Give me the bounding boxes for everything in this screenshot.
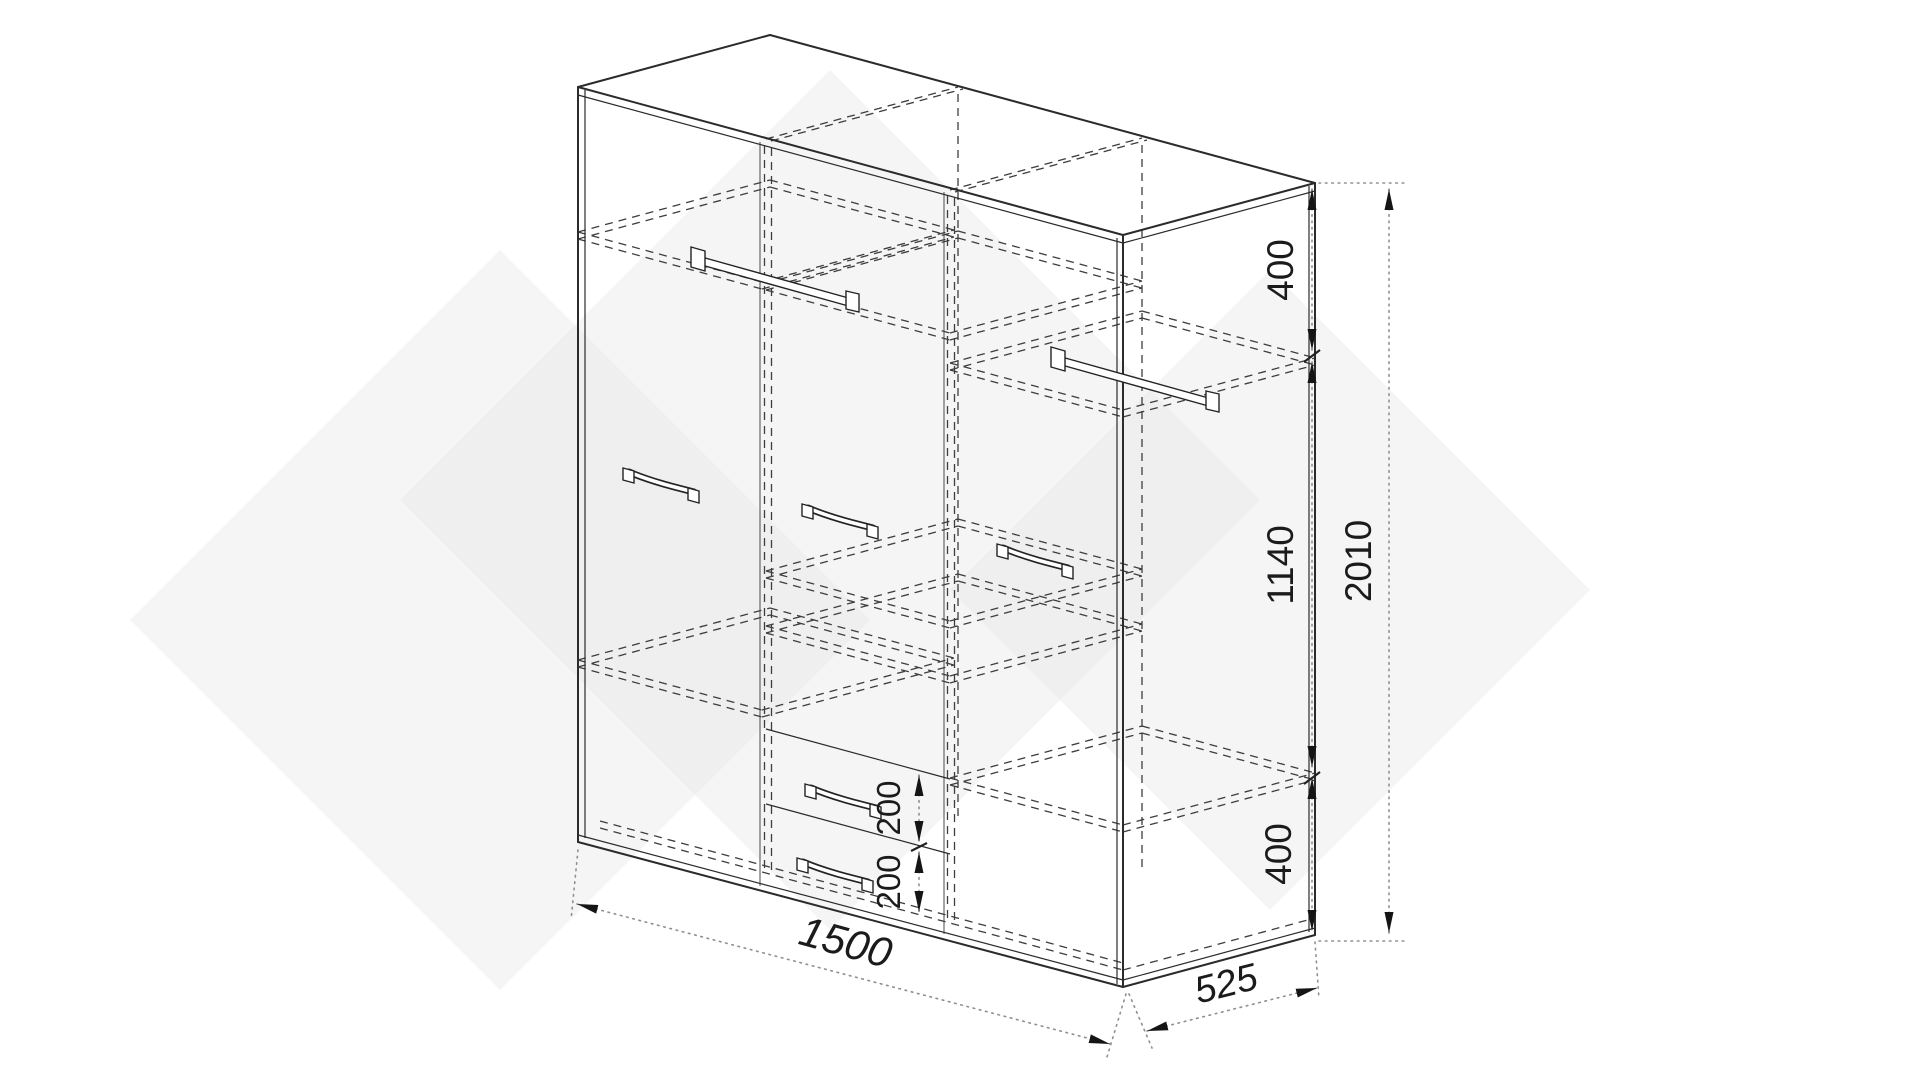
wardrobe-isometric-drawing: 400 1140 400 2010 200 200 1500 525: [0, 0, 1920, 1080]
dim-label-upper-section: 400: [1260, 239, 1301, 301]
dim-label-lower-drawer: 200: [870, 854, 907, 909]
dim-label-total-width: 1500: [795, 907, 898, 977]
dim-label-middle-section: 1140: [1260, 525, 1301, 605]
wardrobe-drawing-page: 400 1140 400 2010 200 200 1500 525: [0, 0, 1920, 1080]
dim-label-lower-section: 400: [1258, 823, 1299, 885]
dim-label-total-height: 2010: [1338, 520, 1379, 602]
dim-label-upper-drawer: 200: [870, 780, 907, 835]
